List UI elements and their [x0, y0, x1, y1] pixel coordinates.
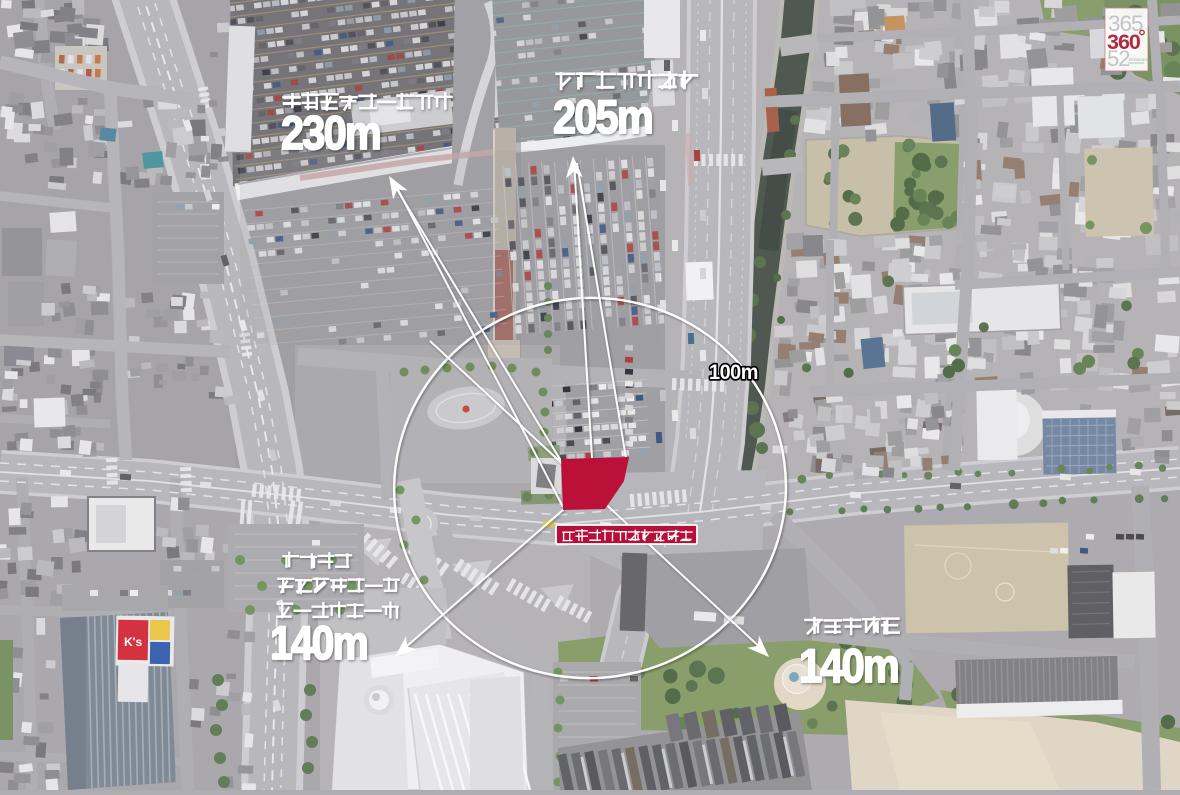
svg-text:52: 52: [1107, 46, 1130, 71]
svg-text:140m: 140m: [799, 639, 898, 692]
svg-text:205m: 205m: [553, 90, 652, 143]
svg-text:230m: 230m: [281, 106, 380, 159]
svg-text:RESIDENCE: RESIDENCE: [1129, 58, 1150, 62]
svg-text:140m: 140m: [270, 616, 367, 669]
svg-text:100m: 100m: [709, 360, 758, 384]
